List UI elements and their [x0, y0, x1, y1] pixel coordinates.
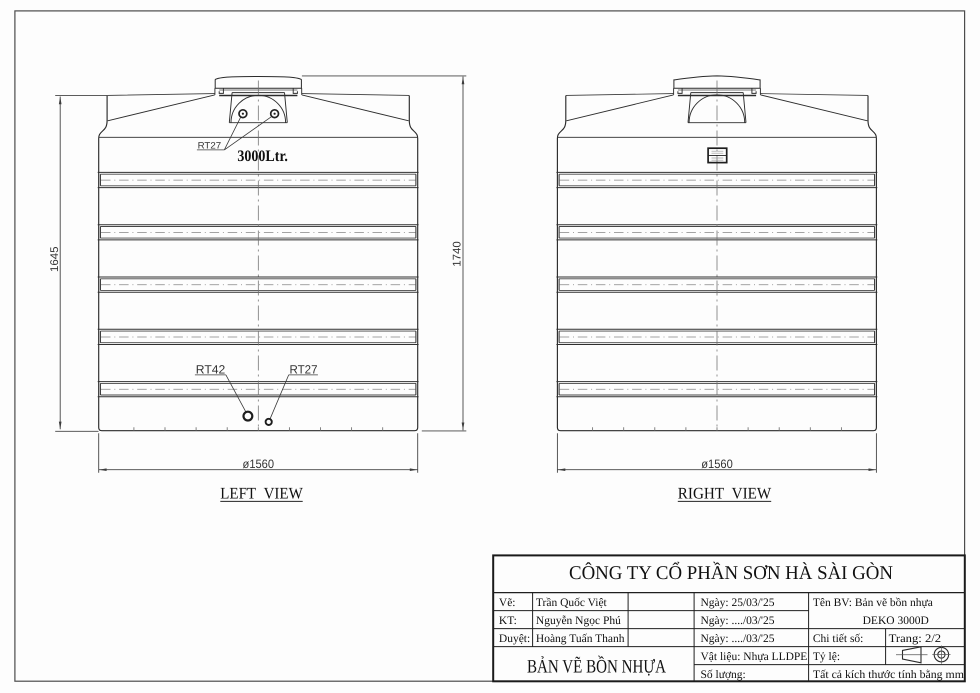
svg-text:Ngày: ..../03/'25: Ngày: ..../03/'25	[701, 633, 775, 645]
svg-text:CÔNG TY CỔ PHẦN SƠN HÀ SÀI GÒN: CÔNG TY CỔ PHẦN SƠN HÀ SÀI GÒN	[569, 561, 893, 584]
svg-text:Tất cả kích thước tính bằng mm: Tất cả kích thước tính bằng mm	[813, 669, 964, 681]
svg-text:1740: 1740	[452, 241, 464, 267]
svg-text:Số lượng:: Số lượng:	[701, 669, 746, 681]
svg-text:1645: 1645	[49, 246, 61, 272]
svg-text:RT42: RT42	[196, 362, 226, 376]
svg-text:Ngày: ..../03/'25: Ngày: ..../03/'25	[701, 615, 775, 627]
svg-text:Ngày: 25/03/'25: Ngày: 25/03/'25	[701, 597, 775, 609]
svg-text:Tên BV: Bản vẽ bồn nhựa: Tên BV: Bản vẽ bồn nhựa	[813, 597, 933, 609]
svg-text:Hoàng Tuấn Thanh: Hoàng Tuấn Thanh	[536, 633, 625, 645]
svg-text:ø1560: ø1560	[243, 457, 275, 471]
svg-text:DEKO 3000D: DEKO 3000D	[863, 615, 929, 627]
svg-text:RT27: RT27	[198, 140, 222, 150]
svg-text:3000Ltr.: 3000Ltr.	[237, 148, 288, 165]
svg-text:Chi tiết số:: Chi tiết số:	[813, 633, 863, 645]
svg-text:LEFT VIEW: LEFT VIEW	[220, 484, 303, 502]
svg-text:Trang: 2/2: Trang: 2/2	[889, 633, 942, 645]
svg-text:BẢN VẼ BỒN NHỰA: BẢN VẼ BỒN NHỰA	[527, 656, 666, 678]
svg-text:Duyệt:: Duyệt:	[499, 633, 530, 645]
svg-text:KT:: KT:	[499, 615, 517, 627]
svg-text:Trần Quốc Việt: Trần Quốc Việt	[536, 597, 608, 609]
svg-text:Vật liệu: Nhựa LLDPE: Vật liệu: Nhựa LLDPE	[701, 651, 808, 663]
svg-text:Tỷ lệ:: Tỷ lệ:	[813, 651, 840, 663]
svg-text:RT27: RT27	[290, 362, 318, 376]
svg-text:Vẽ:: Vẽ:	[499, 597, 516, 609]
svg-text:RIGHT VIEW: RIGHT VIEW	[678, 484, 772, 502]
svg-text:Nguyễn Ngọc Phú: Nguyễn Ngọc Phú	[536, 615, 621, 627]
svg-text:ø1560: ø1560	[701, 457, 733, 471]
